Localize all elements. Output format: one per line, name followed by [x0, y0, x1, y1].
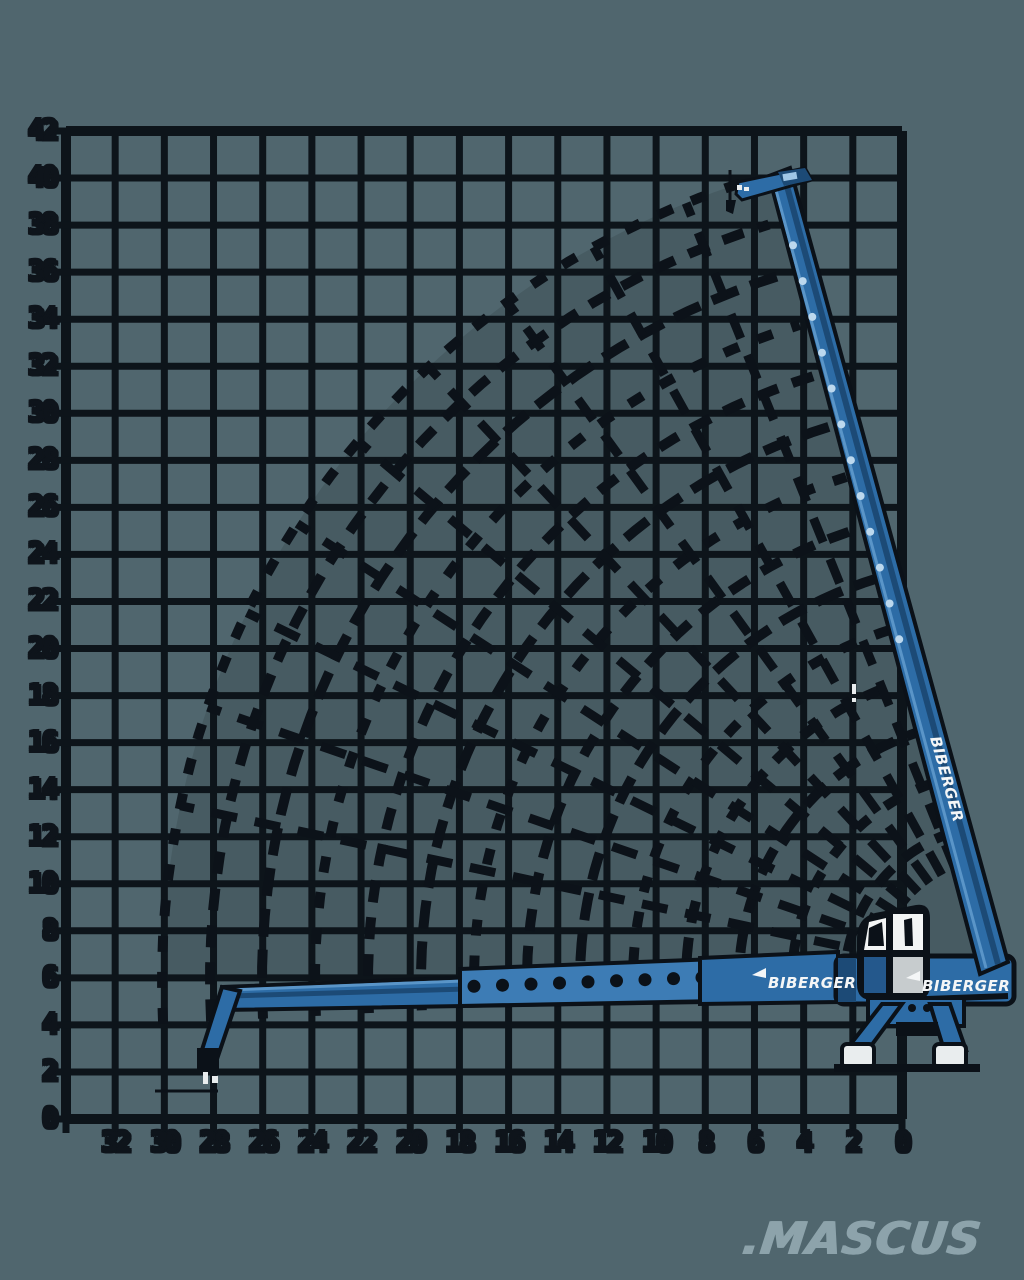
x-axis-tick-label: 28 — [190, 1128, 238, 1156]
hook-mark — [203, 1072, 208, 1084]
y-axis-tick-label: 18 — [2, 681, 56, 709]
y-axis-tick-label: 20 — [2, 634, 56, 662]
y-axis-tick-label: 26 — [2, 492, 56, 520]
x-axis-tick-label: 32 — [91, 1128, 139, 1156]
x-axis-tick-label: 0 — [878, 1128, 926, 1156]
y-axis-tick-label: 30 — [2, 398, 56, 426]
x-axis-tick-label: 2 — [829, 1128, 877, 1156]
x-axis-tick-label: 20 — [386, 1128, 434, 1156]
x-axis-tick-label: 16 — [485, 1128, 533, 1156]
y-axis-tick-label: 28 — [2, 445, 56, 473]
diagram-canvas: BIBERGER BIBERGER BIBERGER — [0, 0, 1024, 1280]
hoist-line-mark — [852, 698, 856, 702]
x-axis-tick-label: 8 — [681, 1128, 729, 1156]
x-axis-tick-label: 6 — [730, 1128, 778, 1156]
y-axis-tick-label: 4 — [2, 1010, 56, 1038]
y-axis-tick-label: 0 — [2, 1104, 56, 1132]
x-axis-tick-label: 24 — [288, 1128, 336, 1156]
x-axis-tick-label: 10 — [632, 1128, 680, 1156]
hook-mark — [212, 1076, 218, 1083]
crane-range-diagram: BIBERGER BIBERGER BIBERGER 4240383634323… — [0, 0, 1024, 1280]
y-axis-tick-label: 22 — [2, 586, 56, 614]
x-axis-tick-label: 4 — [780, 1128, 828, 1156]
brand-text-deck: BIBERGER — [922, 977, 1010, 995]
y-axis-tick-label: 6 — [2, 963, 56, 991]
y-axis-tick-label: 34 — [2, 304, 56, 332]
x-axis-tick-label: 12 — [583, 1128, 631, 1156]
y-axis-tick-label: 24 — [2, 539, 56, 567]
y-axis-tick-label: 36 — [2, 257, 56, 285]
y-axis-tick-label: 40 — [2, 163, 56, 191]
y-axis-tick-label: 16 — [2, 728, 56, 756]
tip-hook-block — [197, 1048, 219, 1070]
y-axis-tick-label: 38 — [2, 210, 56, 238]
operator-cab — [857, 905, 930, 1000]
hoist-line-mark — [852, 684, 856, 694]
x-axis-tick-label: 22 — [337, 1128, 385, 1156]
y-axis-tick-label: 12 — [2, 822, 56, 850]
x-axis-tick-label: 26 — [239, 1128, 287, 1156]
x-axis-tick-label: 18 — [435, 1128, 483, 1156]
x-axis-tick-label: 14 — [534, 1128, 582, 1156]
brand-text-boom-root: BIBERGER — [768, 974, 856, 992]
y-axis-tick-label: 10 — [2, 869, 56, 897]
y-axis-tick-label: 14 — [2, 775, 56, 803]
y-axis-tick-label: 2 — [2, 1057, 56, 1085]
y-axis-tick-label: 8 — [2, 916, 56, 944]
y-axis-tick-label: 32 — [2, 351, 56, 379]
x-axis-tick-label: 30 — [140, 1128, 188, 1156]
mascus-watermark: .MASCUS — [739, 1212, 1016, 1265]
y-axis-tick-label: 42 — [2, 116, 56, 144]
ground-bar — [834, 1064, 980, 1072]
